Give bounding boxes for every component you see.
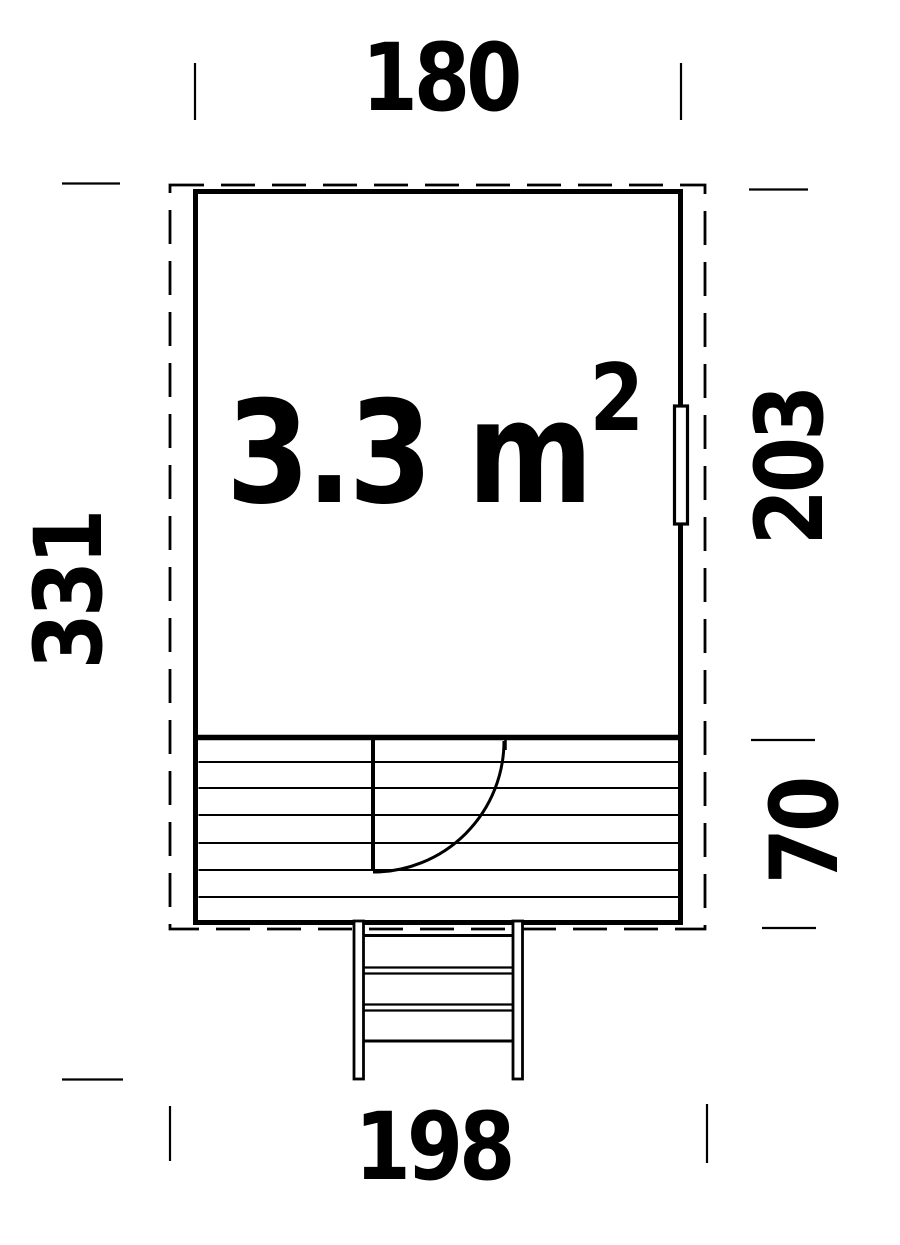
floor-area-value: 3.3 m <box>226 371 590 536</box>
dimension-label-left-depth: 331 <box>23 513 117 670</box>
building-group <box>193 192 683 923</box>
dimension-label-bottom-width: 198 <box>355 1101 512 1195</box>
floor-area-label: 3.3 m2 <box>226 383 644 525</box>
window-right-wall <box>675 406 688 524</box>
dimension-label-room-depth: 203 <box>744 389 838 546</box>
entrance-steps <box>354 921 523 1079</box>
floor-plan-canvas: 180 331 203 70 198 3.3 m2 <box>0 0 900 1245</box>
dimension-label-porch-depth: 70 <box>759 780 853 884</box>
steps-right-rail <box>513 921 523 1079</box>
building-outer-wall <box>196 192 681 923</box>
floor-plan-drawing <box>0 0 900 1245</box>
steps-left-rail <box>354 921 364 1079</box>
dimension-label-top-width: 180 <box>362 32 519 126</box>
floor-area-exponent: 2 <box>590 344 645 452</box>
